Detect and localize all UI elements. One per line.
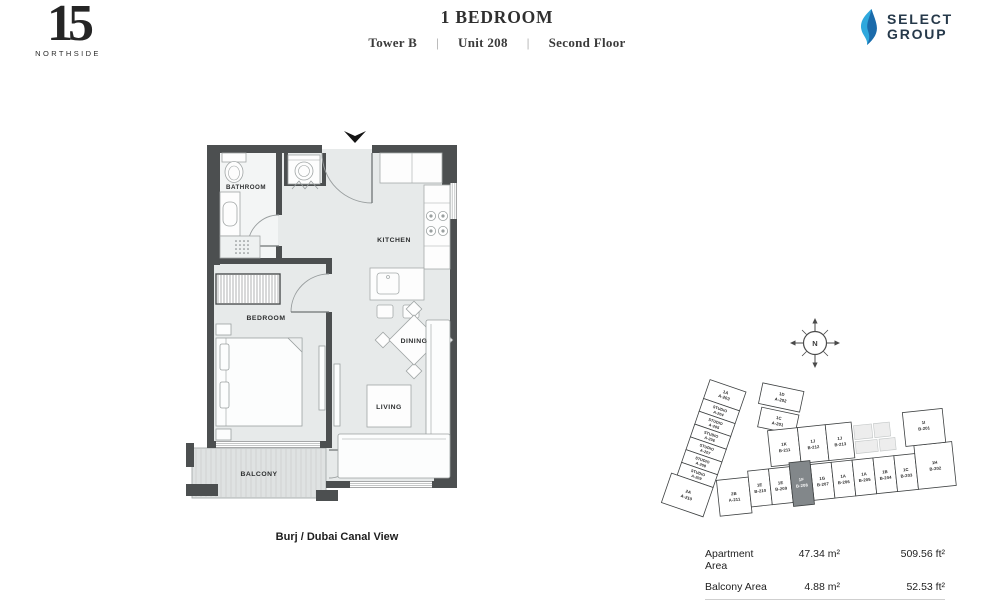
keyplan-unit-label: 1H — [932, 460, 938, 466]
bed — [216, 324, 302, 440]
room-label-living: LIVING — [376, 404, 402, 411]
area-sqm-value: 4.88 m² — [770, 581, 840, 593]
keyplan-unit-label: 1C — [903, 467, 909, 473]
washing-machine — [288, 155, 320, 184]
page-header: 1 BEDROOM Tower B|Unit 208|Second Floor — [297, 7, 697, 51]
wardrobe — [216, 274, 280, 304]
compass-north-label: N — [812, 339, 817, 348]
keyplan-unit-label: 1A — [861, 471, 867, 477]
developer-name-line2: GROUP — [887, 27, 953, 42]
developer-name-line1: SELECT — [887, 12, 953, 27]
keyplan-unit-label: 1B — [882, 469, 888, 475]
developer-name: SELECT GROUP — [887, 12, 953, 42]
keyplan-drawing: 1A A-203 STUDIO A-204 STUDIO A-205 STUDI… — [655, 378, 965, 540]
keyplan-unit-label: 1E — [778, 480, 784, 486]
living-tv-console — [334, 364, 340, 426]
area-sqft-value: 509.56 ft² — [840, 548, 945, 560]
area-row-label: Balcony Area — [705, 581, 770, 593]
keyplan-unit-label-highlighted: 1F — [799, 477, 805, 483]
area-table: Apartment Area 47.34 m² 509.56 ft² Balco… — [705, 543, 945, 600]
bedroom-tv-console — [319, 346, 325, 410]
keyplan-unit-label: 2B — [731, 491, 737, 497]
compass-icon: N — [788, 316, 842, 370]
entry-arrow-icon — [344, 131, 366, 143]
table-row: Balcony Area 4.88 m² 52.53 ft² — [705, 576, 945, 597]
room-label-dining: DINING — [401, 338, 428, 345]
keyplan-core — [853, 422, 896, 454]
tower-label: Tower B — [368, 35, 417, 50]
room-label-kitchen: KITCHEN — [377, 237, 411, 244]
flame-icon — [858, 9, 882, 45]
brochure-page: 15 NORTHSIDE 1 BEDROOM Tower B|Unit 208|… — [0, 0, 1000, 600]
floor-label: Second Floor — [549, 35, 626, 50]
separator: | — [436, 35, 439, 50]
keyplan-units-1d-1c: 1D A-202 1C A-201 — [754, 383, 804, 435]
separator: | — [527, 35, 530, 50]
keyplan-unit-label: 1I — [921, 420, 925, 425]
keyplan-unit-label: 1G — [819, 476, 825, 482]
page-title: 1 BEDROOM — [297, 7, 697, 28]
room-label-bathroom: BATHROOM — [226, 184, 266, 191]
developer-logo: SELECT GROUP — [858, 9, 953, 45]
keyplan-unit-label: 1K — [781, 441, 787, 447]
view-caption: Burj / Dubai Canal View — [217, 531, 457, 543]
room-label-balcony: BALCONY — [240, 471, 277, 478]
page-subtitle: Tower B|Unit 208|Second Floor — [297, 35, 697, 51]
area-sqft-value: 52.53 ft² — [840, 581, 945, 593]
brand-logo-name: NORTHSIDE — [20, 49, 116, 58]
brand-logo-number: 15 — [20, 0, 116, 48]
keyplan-unit-label: 1E — [757, 482, 763, 488]
area-row-label: Apartment Area — [705, 548, 770, 572]
unit-label: Unit 208 — [458, 35, 508, 50]
room-label-bedroom: BEDROOM — [247, 315, 286, 322]
table-row: Apartment Area 47.34 m² 509.56 ft² — [705, 543, 945, 576]
keyplan-wing-b: 2B A-211 1E B-210 1E B-209 1F B-208 1G B… — [711, 408, 956, 516]
floorplan-drawing: BATHROOM KITCHEN BEDROOM DINING LIVING B… — [180, 128, 460, 513]
brand-logo: 15 NORTHSIDE — [20, 0, 116, 58]
area-sqm-value: 47.34 m² — [770, 548, 840, 560]
keyplan-unit-label: 1A — [840, 473, 846, 479]
